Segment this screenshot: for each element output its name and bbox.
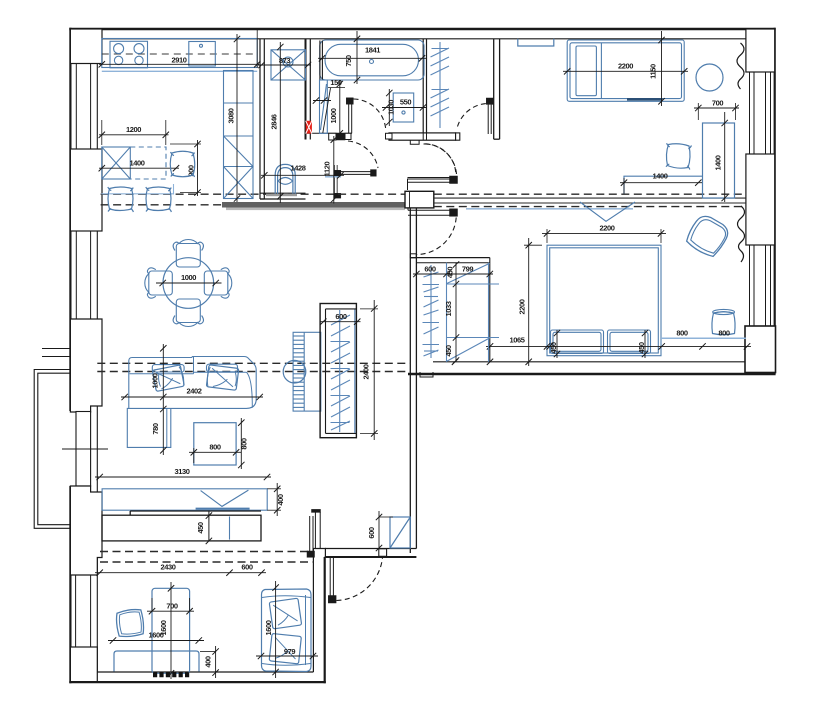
svg-text:3080: 3080 xyxy=(227,108,236,123)
svg-text:799: 799 xyxy=(462,265,474,274)
svg-text:2910: 2910 xyxy=(171,56,186,65)
svg-text:1400: 1400 xyxy=(652,172,667,181)
svg-text:600: 600 xyxy=(424,265,436,274)
svg-text:1000: 1000 xyxy=(181,273,196,282)
svg-text:979: 979 xyxy=(284,647,296,656)
svg-text:400: 400 xyxy=(276,494,285,506)
svg-text:600: 600 xyxy=(335,312,347,321)
svg-text:450: 450 xyxy=(196,522,205,534)
svg-text:1033: 1033 xyxy=(444,301,453,316)
svg-text:1400: 1400 xyxy=(714,155,723,170)
svg-text:600: 600 xyxy=(367,527,376,539)
svg-text:1000: 1000 xyxy=(151,373,160,388)
svg-text:450: 450 xyxy=(445,267,454,279)
svg-text:2402: 2402 xyxy=(186,387,201,396)
svg-text:2200: 2200 xyxy=(599,224,614,233)
svg-text:1000: 1000 xyxy=(329,108,338,123)
svg-text:2200: 2200 xyxy=(618,62,633,71)
svg-text:700: 700 xyxy=(166,602,178,611)
svg-text:1600: 1600 xyxy=(264,620,273,635)
svg-text:800: 800 xyxy=(718,329,730,338)
svg-text:1065: 1065 xyxy=(509,336,524,345)
svg-text:1428: 1428 xyxy=(290,164,305,173)
svg-text:1841: 1841 xyxy=(365,46,380,55)
svg-text:780: 780 xyxy=(151,423,160,435)
svg-text:1600: 1600 xyxy=(148,631,163,640)
svg-text:1030: 1030 xyxy=(387,100,396,115)
svg-text:450: 450 xyxy=(637,342,646,354)
svg-text:1120: 1120 xyxy=(323,161,332,176)
svg-text:1150: 1150 xyxy=(649,64,658,79)
svg-text:2846: 2846 xyxy=(270,114,279,129)
svg-text:550: 550 xyxy=(400,98,412,107)
svg-text:2430: 2430 xyxy=(160,563,175,572)
svg-text:800: 800 xyxy=(240,438,249,450)
svg-text:600: 600 xyxy=(241,563,253,572)
svg-text:800: 800 xyxy=(209,443,221,452)
svg-text:450: 450 xyxy=(444,345,453,357)
svg-text:2200: 2200 xyxy=(518,299,527,314)
svg-text:400: 400 xyxy=(204,656,213,668)
svg-text:1200: 1200 xyxy=(126,125,141,134)
svg-text:450: 450 xyxy=(549,342,558,354)
svg-text:3130: 3130 xyxy=(174,467,189,476)
svg-text:750: 750 xyxy=(344,55,353,67)
svg-text:700: 700 xyxy=(712,99,724,108)
svg-text:800: 800 xyxy=(676,329,688,338)
svg-text:2400: 2400 xyxy=(362,364,371,379)
svg-text:1400: 1400 xyxy=(129,159,144,168)
